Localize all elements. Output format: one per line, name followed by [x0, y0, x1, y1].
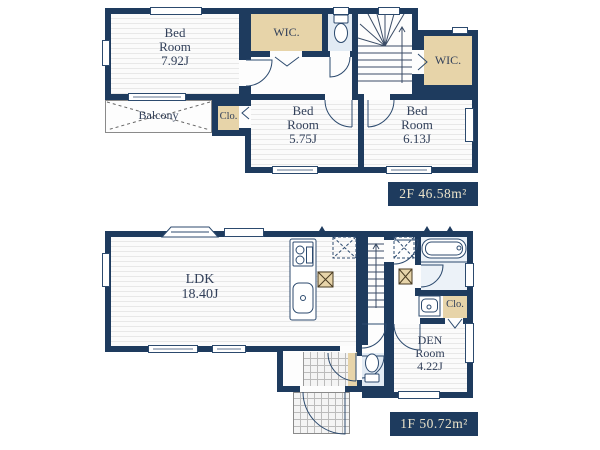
room-area-line: 6.13J	[377, 132, 457, 146]
f1-window	[398, 391, 440, 399]
f1-ldk-label: LDK 18.40J	[160, 272, 240, 302]
f1-stairs-floor	[368, 237, 384, 351]
f2-bedroom3-label: Bed Room 6.13J	[377, 104, 457, 146]
f2-bedroom2-label: Bed Room 5.75J	[263, 104, 343, 146]
f1-porch	[293, 392, 350, 434]
floor-plan-canvas: Bed Room 7.92J WIC. WIC. Balcony Clo. Be…	[0, 0, 600, 450]
f2-window	[333, 7, 349, 15]
room-name-line: Room	[263, 118, 343, 132]
f2-door-opening	[364, 94, 390, 100]
room-name-line: Room	[390, 347, 470, 360]
f2-door-opening	[239, 60, 251, 86]
room-area-line: 5.75J	[263, 132, 343, 146]
f1-area-badge: 1F 50.72m²	[390, 412, 478, 436]
f2-balcony-label: Balcony	[105, 109, 212, 122]
f1-toilet-floor	[362, 351, 384, 386]
f1-closet-label: Clo.	[443, 299, 467, 310]
f1-bath-washroom-floor	[421, 237, 467, 290]
f2-window	[386, 166, 432, 174]
f1-window	[102, 253, 110, 287]
f2-window	[452, 27, 468, 34]
f1-window	[224, 228, 264, 237]
room-area-line: 4.22J	[390, 360, 470, 373]
f1-door-opening	[362, 345, 384, 353]
f2-wic-top-label: WIC.	[251, 26, 322, 39]
room-name-line: DEN	[390, 334, 470, 347]
room-name-line: Bed	[135, 26, 215, 40]
room-name-line: Bed	[377, 104, 457, 118]
f2-toilet-floor	[328, 14, 352, 51]
f1-entrance-opening	[300, 386, 345, 392]
f2-window	[378, 7, 400, 15]
f1-window	[465, 263, 474, 287]
room-name-line: Bed	[263, 104, 343, 118]
f2-window	[272, 166, 318, 174]
f2-bedroom1-label: Bed Room 7.92J	[135, 26, 215, 68]
f1-window	[212, 345, 246, 353]
f2-stairs-floor	[358, 14, 412, 88]
f2-balcony-window	[128, 93, 186, 101]
room-area-line: 18.40J	[160, 287, 240, 302]
f1-window	[148, 345, 198, 353]
f2-door-opening	[330, 51, 350, 57]
room-name-line: Room	[135, 40, 215, 54]
f1-door-opening	[415, 265, 421, 288]
f2-door-opening	[412, 50, 424, 74]
f1-door-opening	[394, 318, 420, 324]
f2-closet-label: Clo.	[213, 111, 244, 122]
f2-window	[102, 40, 110, 66]
f2-door-opening	[325, 94, 352, 100]
f1-door-opening	[445, 318, 463, 324]
f2-window	[465, 108, 474, 142]
f1-door-opening	[384, 240, 394, 262]
f1-den-label: DEN Room 4.22J	[390, 334, 470, 373]
room-area-line: 7.92J	[135, 54, 215, 68]
f2-door-opening	[270, 51, 302, 57]
f2-wic-right-label: WIC.	[424, 54, 472, 67]
f1-door-opening	[356, 356, 362, 380]
f2-window	[150, 7, 202, 15]
room-name-line: Room	[377, 118, 457, 132]
room-name-line: LDK	[160, 272, 240, 287]
f2-area-badge: 2F 46.58m²	[388, 182, 478, 206]
f1-genkan-floor	[303, 352, 348, 386]
f2-hall-floor	[251, 57, 352, 94]
f1-door-opening	[340, 346, 356, 353]
